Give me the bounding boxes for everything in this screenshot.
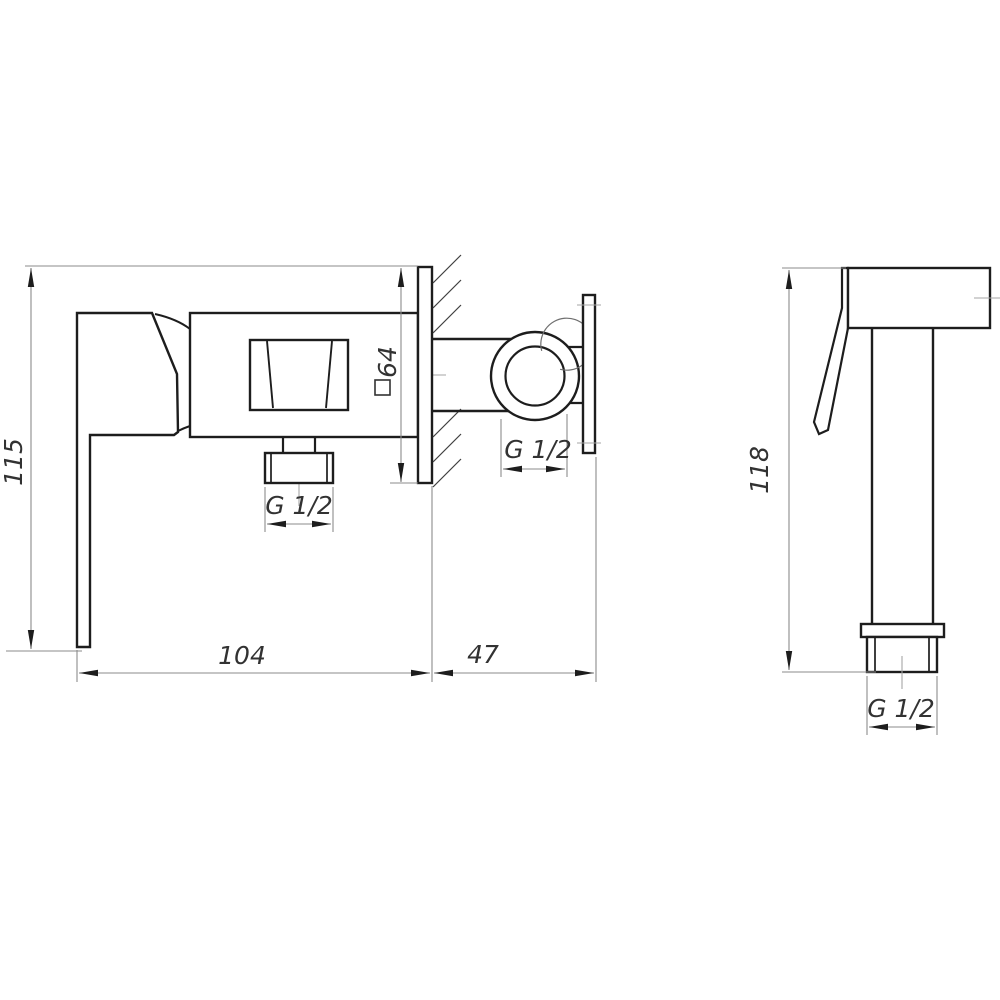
hatch-line <box>433 280 461 308</box>
handle-body-transition-arc-bottom <box>178 426 190 431</box>
drawing-sheet: 115 104 47 64 G 1/2 G 1/2 118 G 1/2 <box>0 0 1000 1000</box>
hatch-line <box>433 409 461 437</box>
wall-hatching <box>433 255 461 487</box>
dim-text-118: 118 <box>745 446 774 494</box>
wall-mounting-plate <box>418 267 432 483</box>
wall-flange-outer-circle <box>491 332 579 420</box>
shower-holder-plate <box>583 295 595 453</box>
dim-text-wall-thread: G 1/2 <box>504 435 572 464</box>
spout-opening <box>250 340 348 410</box>
dim-text-104: 104 <box>218 641 266 670</box>
dim-text-47: 47 <box>467 640 499 669</box>
technical-drawing-canvas: 115 104 47 64 G 1/2 G 1/2 118 G 1/2 <box>0 0 1000 1000</box>
hatch-line <box>433 305 461 333</box>
dim-text-outlet-thread: G 1/2 <box>265 491 333 520</box>
shower-trigger-lever <box>814 268 848 434</box>
shower-collar <box>861 624 944 637</box>
dim-text-64: 64 <box>373 346 402 378</box>
hand-shower-side-view <box>814 268 1000 689</box>
handle-body-transition-arc-top <box>155 314 190 329</box>
dim-text-115: 115 <box>0 438 28 486</box>
shower-head <box>848 268 990 328</box>
mixer-lever-handle <box>77 313 178 647</box>
outlet-nut <box>265 453 333 483</box>
hatch-line <box>433 459 461 487</box>
hatch-line <box>433 255 461 283</box>
dim-text-shower-thread: G 1/2 <box>867 694 935 723</box>
hatch-line <box>433 434 461 462</box>
